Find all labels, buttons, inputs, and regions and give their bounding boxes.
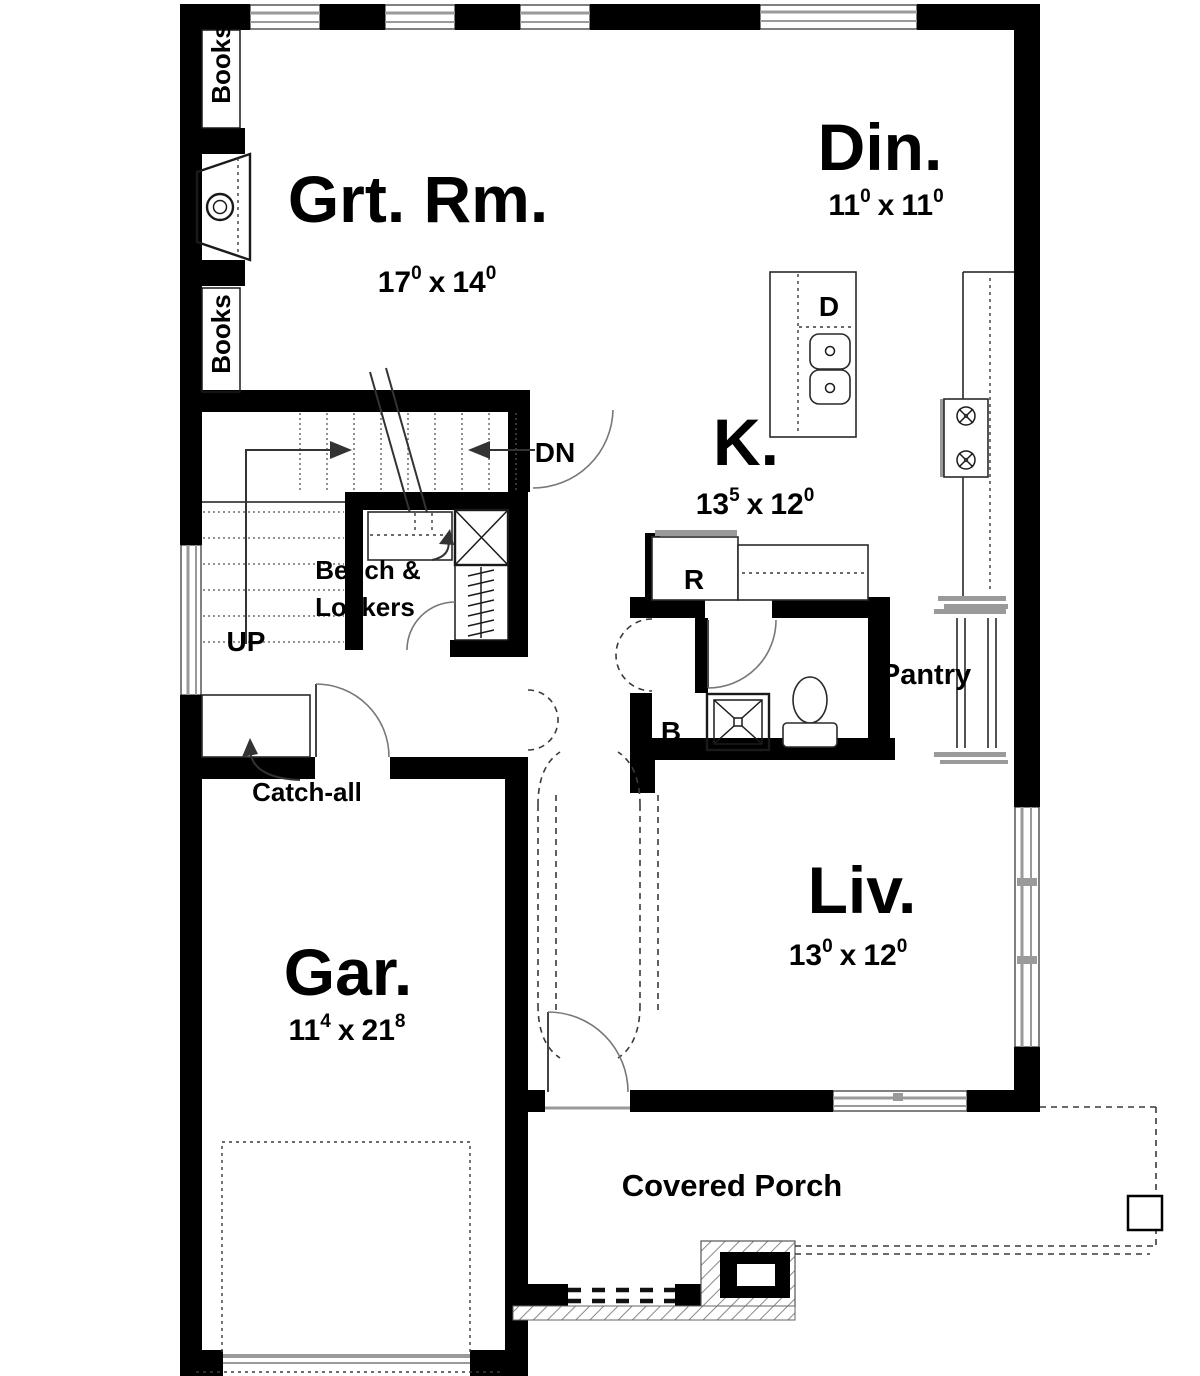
garage-area xyxy=(196,1142,500,1372)
garage-label: Gar. xyxy=(284,935,412,1009)
dn-label: DN xyxy=(535,437,575,468)
cooktop-shape xyxy=(964,414,968,418)
living-bottom-window-shape xyxy=(893,1093,903,1101)
kitchen-dims-shape: 5 xyxy=(729,485,740,506)
mud-hall-arch xyxy=(528,690,558,750)
hall-corner-stub xyxy=(630,760,655,793)
shower-shape xyxy=(714,700,734,718)
porch-column xyxy=(701,1241,795,1307)
fireplace-stub-bottom xyxy=(183,260,245,286)
top-wall-segment xyxy=(455,4,520,30)
great-room-window-2-shape xyxy=(385,5,455,29)
stair-landing-stub xyxy=(508,412,530,492)
coat-closet xyxy=(455,565,508,640)
living-dims-shape: 13 xyxy=(789,939,822,972)
toilet-shape xyxy=(783,723,837,747)
cooktop-shape xyxy=(944,399,988,477)
living-bottom-window xyxy=(833,1091,967,1111)
refrigerator-shape xyxy=(655,530,737,536)
living-side-window-shape xyxy=(1017,956,1037,964)
fireplace-flue-inner xyxy=(214,201,227,214)
fireplace-flue-outer xyxy=(207,194,233,220)
pantry-shelves-shape xyxy=(934,609,1006,614)
up-label: UP xyxy=(227,626,266,657)
pantry-shelves-shape xyxy=(934,752,1006,757)
kitchen-dims: 135x120 xyxy=(696,485,815,521)
sink-bowl-upper xyxy=(810,334,850,369)
pantry-label: Pantry xyxy=(881,659,971,691)
fireplace-box xyxy=(197,154,250,260)
dining-dims-shape: 0 xyxy=(933,186,944,207)
floor-plan-drawing: Grt. Rm. 170x140 Din. 110x110 K. 135x120… xyxy=(0,0,1200,1376)
living-dims-shape: 12 xyxy=(863,939,896,972)
living-side-window-shape xyxy=(1015,807,1039,1047)
porch-knee-wall-left xyxy=(528,1284,568,1306)
garage-dims-shape: x xyxy=(338,1014,355,1047)
right-wall-upper xyxy=(1014,4,1040,807)
bench xyxy=(368,512,452,560)
dishwasher-letter: D xyxy=(819,291,839,322)
toilet-shape xyxy=(793,677,827,723)
porch-area xyxy=(513,1107,1162,1320)
pantry-shelves-shape xyxy=(940,760,1008,764)
living-side-window-shape xyxy=(1017,878,1037,886)
catch-all-counter xyxy=(202,695,310,757)
refrigerator-letter: R xyxy=(684,564,704,595)
great-room-dims: 170x140 xyxy=(378,263,497,299)
garage-dims-shape: 11 xyxy=(289,1014,321,1047)
dn-direction-arrow-shape xyxy=(468,441,490,459)
covered-porch-label: Covered Porch xyxy=(622,1168,843,1203)
dining-dims-shape: 0 xyxy=(860,186,871,207)
garage-door-swing xyxy=(316,684,389,757)
great-room-window-2 xyxy=(385,5,455,29)
kitchen-dims-shape: 13 xyxy=(696,488,729,521)
garage-right-wall xyxy=(505,757,528,1376)
closet-bottom-wall xyxy=(450,640,528,657)
porch-column-shape xyxy=(737,1264,775,1286)
stair-window-shape xyxy=(181,545,201,695)
kitchen-dims-shape: 12 xyxy=(770,488,803,521)
kitchen-dims-shape: x xyxy=(747,488,764,521)
porch-steps xyxy=(513,1306,795,1320)
great-room-dims-shape: 0 xyxy=(486,263,497,284)
dining-window-shape xyxy=(760,5,917,29)
bath-door-swing xyxy=(708,620,776,688)
bench-room-top-wall xyxy=(345,492,528,510)
great-room-dims-shape: 17 xyxy=(378,266,411,299)
dining-dims-shape: x xyxy=(878,189,895,222)
great-room-window-1 xyxy=(250,5,320,29)
mud-wall-left xyxy=(180,757,315,779)
dining-window xyxy=(760,5,917,29)
hall-arch-east-shape xyxy=(618,1005,640,1058)
hall-arch-east xyxy=(618,752,658,1058)
living-bottom-wall-a xyxy=(528,1090,545,1112)
garage-dims-shape: 8 xyxy=(395,1011,406,1032)
kitchen-label: K. xyxy=(713,405,779,479)
stair-top-wall xyxy=(202,390,530,412)
books-label-upper: Books xyxy=(206,24,236,103)
toilet xyxy=(783,677,837,747)
great-room-dims-shape: x xyxy=(429,266,446,299)
living-label: Liv. xyxy=(808,853,917,927)
top-wall-segment xyxy=(320,4,385,30)
living-bottom-wall-b xyxy=(630,1090,833,1112)
kitchen-dims-shape: 0 xyxy=(804,485,815,506)
floor-plan-page: Grt. Rm. 170x140 Din. 110x110 K. 135x120… xyxy=(0,0,1200,1376)
living-dims-shape: x xyxy=(840,939,857,972)
great-room-label: Grt. Rm. xyxy=(288,162,548,236)
chase-right-wall xyxy=(508,492,528,657)
garage-bottom-wall-left xyxy=(180,1350,223,1376)
dining-dims: 110x110 xyxy=(828,186,943,222)
catch-all-label: Catch-all xyxy=(252,777,362,807)
kitchen-island xyxy=(770,272,856,437)
front-door-swing xyxy=(548,1012,628,1092)
great-room-window-1-shape xyxy=(250,5,320,29)
cooktop xyxy=(940,399,988,477)
car-space xyxy=(222,1142,470,1352)
bench-lockers-label-line2: Lockers xyxy=(315,592,415,622)
shower-shape xyxy=(734,718,742,726)
dining-dims-shape: 11 xyxy=(828,189,860,222)
kitchen-counter-north xyxy=(738,545,868,600)
stair-window xyxy=(181,545,201,695)
bench-lockers-label-line1: Bench & xyxy=(315,555,420,585)
left-wall-lower xyxy=(180,695,202,1376)
garage-dims-shape: 21 xyxy=(362,1014,395,1047)
dining-label: Din. xyxy=(818,110,943,184)
up-direction-arrow-shape xyxy=(330,441,352,459)
great-room-dims-shape: 14 xyxy=(452,266,486,299)
living-dims-shape: 0 xyxy=(822,936,833,957)
porch-corner-post xyxy=(1128,1196,1162,1230)
living-side-window xyxy=(1015,807,1039,1047)
sink-bowl-lower xyxy=(810,370,850,404)
shower-shape xyxy=(742,700,762,718)
mud-wall-right xyxy=(390,757,528,779)
great-room-dims-shape: 0 xyxy=(411,263,422,284)
living-dims-shape: 0 xyxy=(897,936,908,957)
great-room-window-3-shape xyxy=(520,5,590,29)
dining-dims-shape: 11 xyxy=(901,189,933,222)
bath-partition xyxy=(695,618,708,693)
top-wall-segment xyxy=(590,4,760,30)
garage-dims-shape: 4 xyxy=(320,1011,331,1032)
kitchen-counter-east-shape xyxy=(944,604,1008,609)
living-dims: 130x120 xyxy=(789,936,908,972)
great-room-window-3 xyxy=(520,5,590,29)
bath-vestibule-arch xyxy=(616,619,652,691)
fireplace-stub-top xyxy=(183,128,245,154)
garage-dims: 114x218 xyxy=(289,1011,406,1047)
kitchen-counter-east-shape xyxy=(938,596,1006,601)
bath-letter: B xyxy=(661,716,681,747)
living-bottom-wall-c xyxy=(967,1090,1018,1112)
cooktop-shape xyxy=(964,458,968,462)
porch-edge-dashed xyxy=(795,1107,1162,1254)
books-label-lower: Books xyxy=(206,294,236,373)
